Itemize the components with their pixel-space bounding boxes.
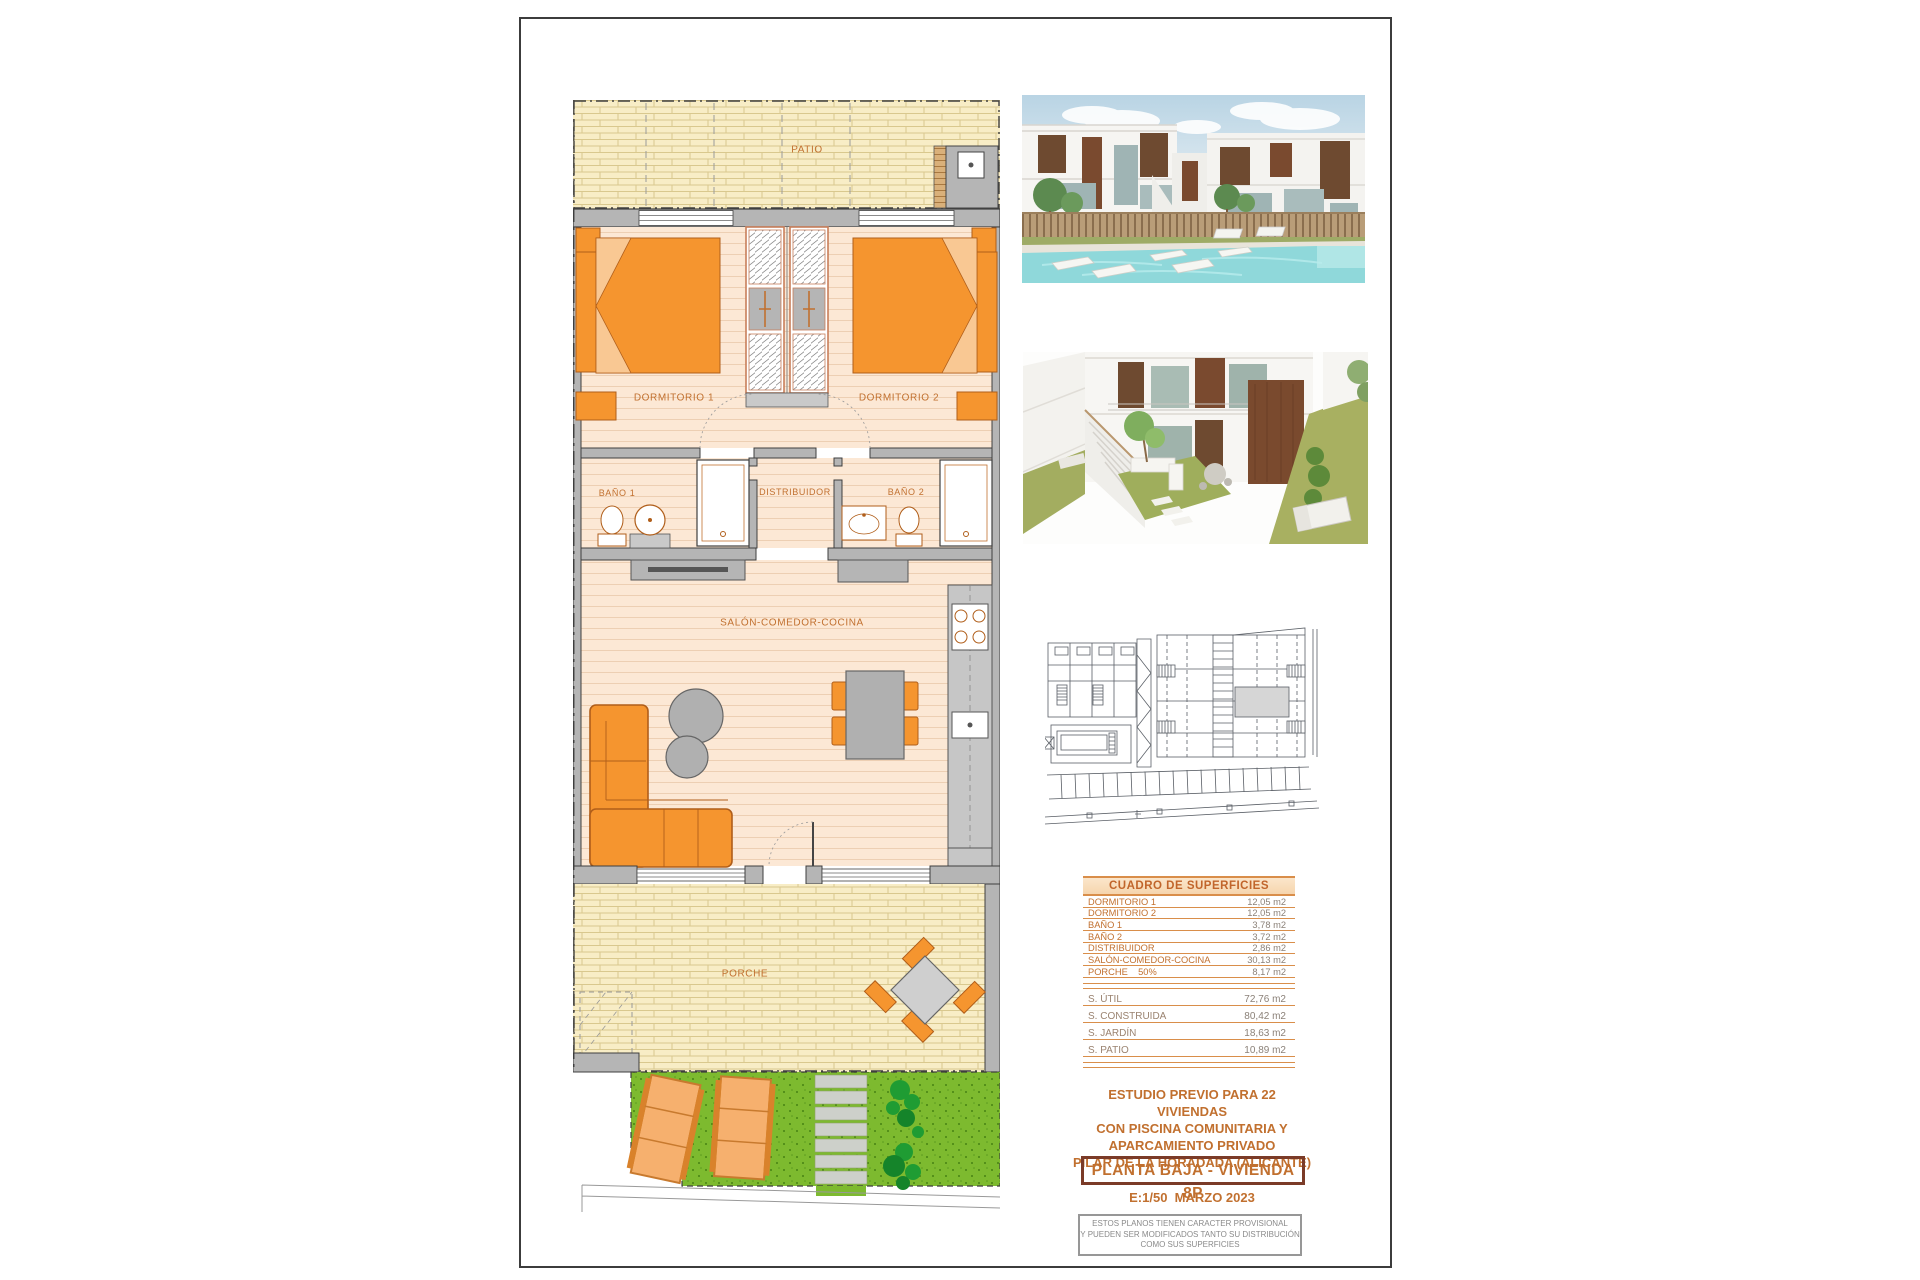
wall-living-porch [573, 866, 1000, 884]
coffee-table-small-icon [666, 736, 708, 778]
areas-table: CUADRO DE SUPERFICIES DORMITORIO 112,05 … [1083, 876, 1295, 1068]
room-label-dormitorio1: DORMITORIO 1 [634, 393, 714, 404]
table-total-row: S. CONSTRUIDA80,42 m2 [1083, 1006, 1295, 1023]
floor-plan [573, 100, 1000, 1220]
table-total-row: S. JARDÍN18,63 m2 [1083, 1023, 1295, 1040]
room-label-salon: SALÓN-COMEDOR-COCINA [720, 618, 864, 629]
plan-title-box: PLANTA BAJA - VIVIENDA 8P [1081, 1156, 1305, 1185]
toilet-icon [899, 507, 919, 533]
wardrobes-icon [746, 227, 828, 407]
areas-table-title: CUADRO DE SUPERFICIES [1083, 876, 1295, 896]
table-row: BAÑO 23,72 m2 [1083, 931, 1295, 943]
table-row: BAÑO 13,78 m2 [1083, 919, 1295, 931]
toilet-icon [601, 506, 623, 534]
project-line: CON PISCINA COMUNITARIA Y [1072, 1120, 1312, 1137]
project-line: ESTUDIO PREVIO PARA 22 VIVIENDAS [1072, 1086, 1312, 1120]
sun-lounger-icon [709, 1076, 776, 1180]
room-label-distribuidor: DISTRIBUIDOR [759, 487, 831, 497]
project-line: APARCAMIENTO PRIVADO [1072, 1137, 1312, 1154]
disclaimer-line: Y PUEDEN SER MODIFICADOS TANTO SU DISTRI… [1080, 1230, 1300, 1241]
table-row: SALÓN-COMEDOR-COCINA30,13 m2 [1083, 954, 1295, 966]
wall-bedrooms-hall [581, 448, 992, 458]
highlighted-unit [1235, 687, 1289, 717]
room-label-patio: PATIO [791, 145, 823, 156]
sheet-background: PATIO DORMITORIO 1 DORMITORIO 2 BAÑO 1 D… [0, 0, 1920, 1280]
table-total-row: S. ÚTIL72,76 m2 [1083, 989, 1295, 1006]
table-row: PORCHE 50%8,17 m2 [1083, 966, 1295, 978]
patio-wood-strip [934, 146, 946, 208]
site-plan [1045, 625, 1345, 853]
site-boundary-lines [582, 1185, 1000, 1212]
room-label-bano2: BAÑO 2 [888, 487, 925, 497]
sideboard-icon [838, 560, 908, 582]
shower-icon [940, 460, 992, 546]
sink-icon [842, 506, 886, 540]
garden-area [582, 1072, 1000, 1212]
kitchen-counter-icon [948, 585, 992, 866]
table-row: DISTRIBUIDOR2,86 m2 [1083, 943, 1295, 955]
render-terrace-view [1023, 352, 1368, 544]
disclaimer-line: COMO SUS SUPERFICIES [1080, 1240, 1300, 1251]
path-end-grass [816, 1186, 866, 1196]
table-row: DORMITORIO 112,05 m2 [1083, 896, 1295, 908]
scale-and-date: E:1/50 MARZO 2023 [1072, 1190, 1312, 1205]
coffee-table-icon [669, 689, 723, 743]
render-pool-view [1022, 95, 1365, 283]
porch-area [573, 884, 1000, 1072]
wall-patio-bedrooms [573, 209, 1000, 227]
table-total-row: S. PATIO10,89 m2 [1083, 1040, 1295, 1057]
outdoor-table [1204, 463, 1226, 485]
room-label-bano1: BAÑO 1 [599, 488, 636, 498]
tv-sideboard-icon [631, 560, 745, 580]
garden-path-icon [815, 1075, 867, 1184]
fence [1022, 213, 1365, 239]
disclaimer-box: ESTOS PLANOS TIENEN CARACTER PROVISIONAL… [1078, 1214, 1302, 1256]
room-label-porche: PORCHE [722, 969, 768, 980]
patio-area [573, 100, 1000, 209]
shower-icon [697, 460, 749, 546]
room-label-dormitorio2: DORMITORIO 2 [859, 393, 939, 404]
window-bedroom2 [859, 211, 954, 226]
table-divider [1083, 1062, 1295, 1068]
disclaimer-line: ESTOS PLANOS TIENEN CARACTER PROVISIONAL [1080, 1219, 1300, 1230]
pool-steps [1317, 246, 1365, 268]
table-row: DORMITORIO 212,05 m2 [1083, 908, 1295, 920]
window-bedroom1 [639, 211, 733, 226]
